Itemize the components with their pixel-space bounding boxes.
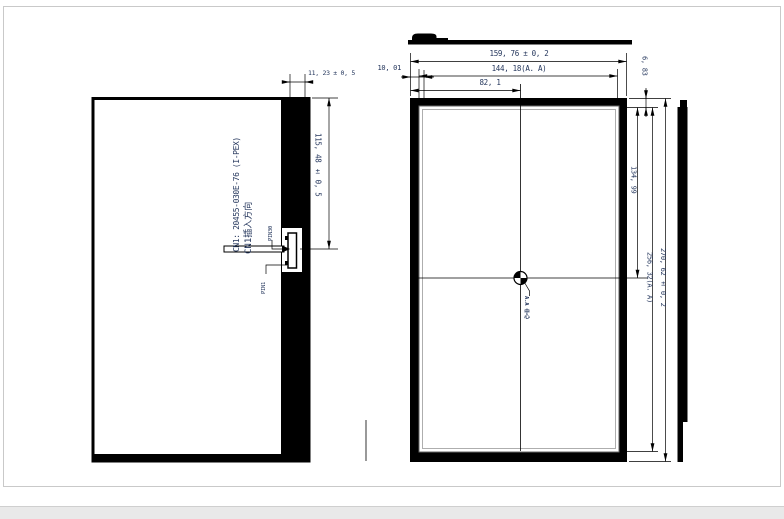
pin30-label: PIN30 xyxy=(268,226,274,241)
side-view-body xyxy=(678,107,688,422)
dim-top-bezel-text: 6, 83 xyxy=(640,56,648,76)
center-mark-label: A.A 中心 xyxy=(523,296,529,319)
dim-outline-height-text: 270, 62 ± 0, 2 xyxy=(659,248,667,307)
drawing-sheet: CN1: 20455-030E-76 (I-PEX) CN1插入方向 PIN30… xyxy=(0,0,784,519)
dim-left-bezel-text: 10, 01 xyxy=(363,65,401,73)
connector-pin30-mark xyxy=(285,236,289,240)
connector-model-label: CN1: 20455-030E-76 (I-PEX) xyxy=(233,137,242,252)
left-view-right-bezel xyxy=(281,98,310,463)
dim-outline-width-text: 159, 76 ± 0, 2 xyxy=(453,50,585,58)
top-side-view xyxy=(408,40,632,45)
top-side-view-connector-bump xyxy=(412,34,448,41)
dim-connector-position-text: 115, 48 ± 0, 5 xyxy=(313,133,321,197)
side-view-top xyxy=(680,100,687,108)
viewport-bottom-strip xyxy=(0,506,784,519)
pin1-label: PIN1 xyxy=(261,282,267,294)
left-view-outline xyxy=(93,99,309,462)
dim-active-width-text: 144, 18(A. A) xyxy=(453,65,585,73)
connector-pin1-mark xyxy=(285,261,289,265)
dim-center-x-text: 82, 1 xyxy=(460,79,520,87)
left-view-bottom-bezel xyxy=(92,454,310,462)
dim-active-height-text: 256, 32(A. A) xyxy=(645,252,653,303)
dim-connector-offset-text: 11, 23 ± 0, 5 xyxy=(308,70,355,77)
side-view-step xyxy=(678,422,684,462)
connector-insertion-label: CN1插入方向 xyxy=(245,202,255,254)
dim-center-y-text: 134, 99 xyxy=(629,166,637,193)
connector-body xyxy=(288,233,297,268)
